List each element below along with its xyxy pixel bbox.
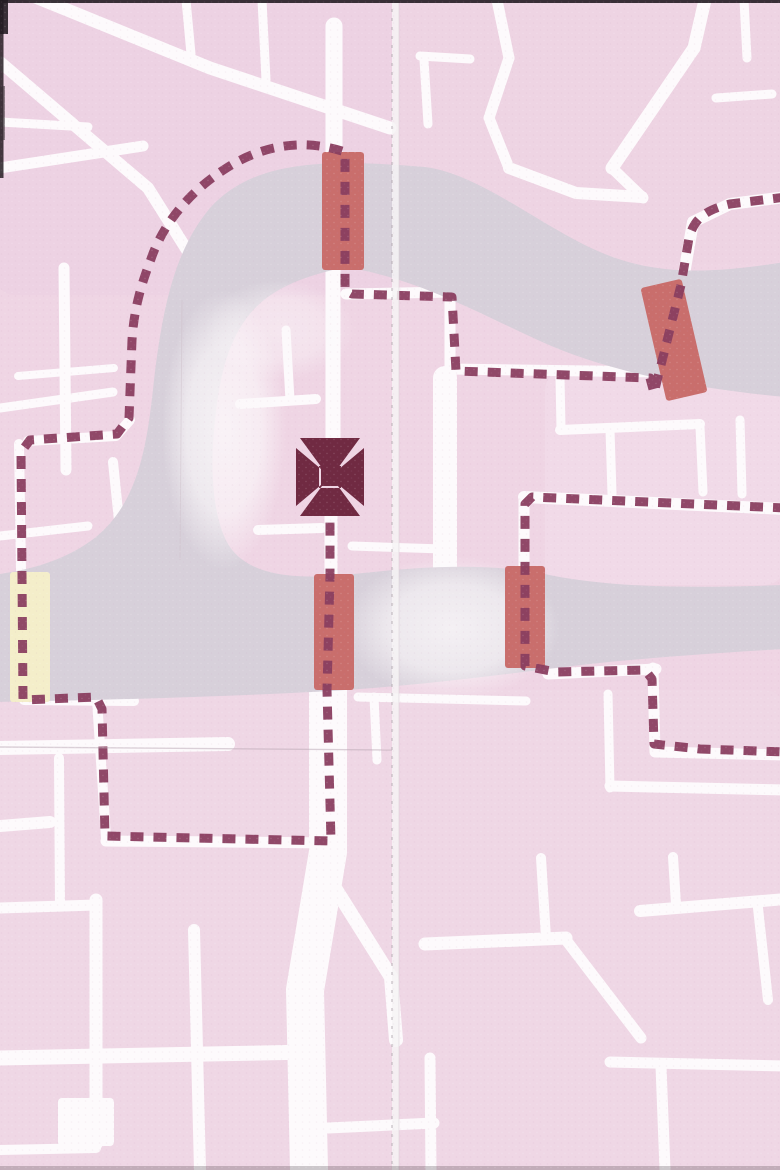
- film-frame-city-map: [0, 0, 780, 1170]
- city-map-svg: [0, 0, 780, 1170]
- film-grain-overlay: [0, 0, 780, 1170]
